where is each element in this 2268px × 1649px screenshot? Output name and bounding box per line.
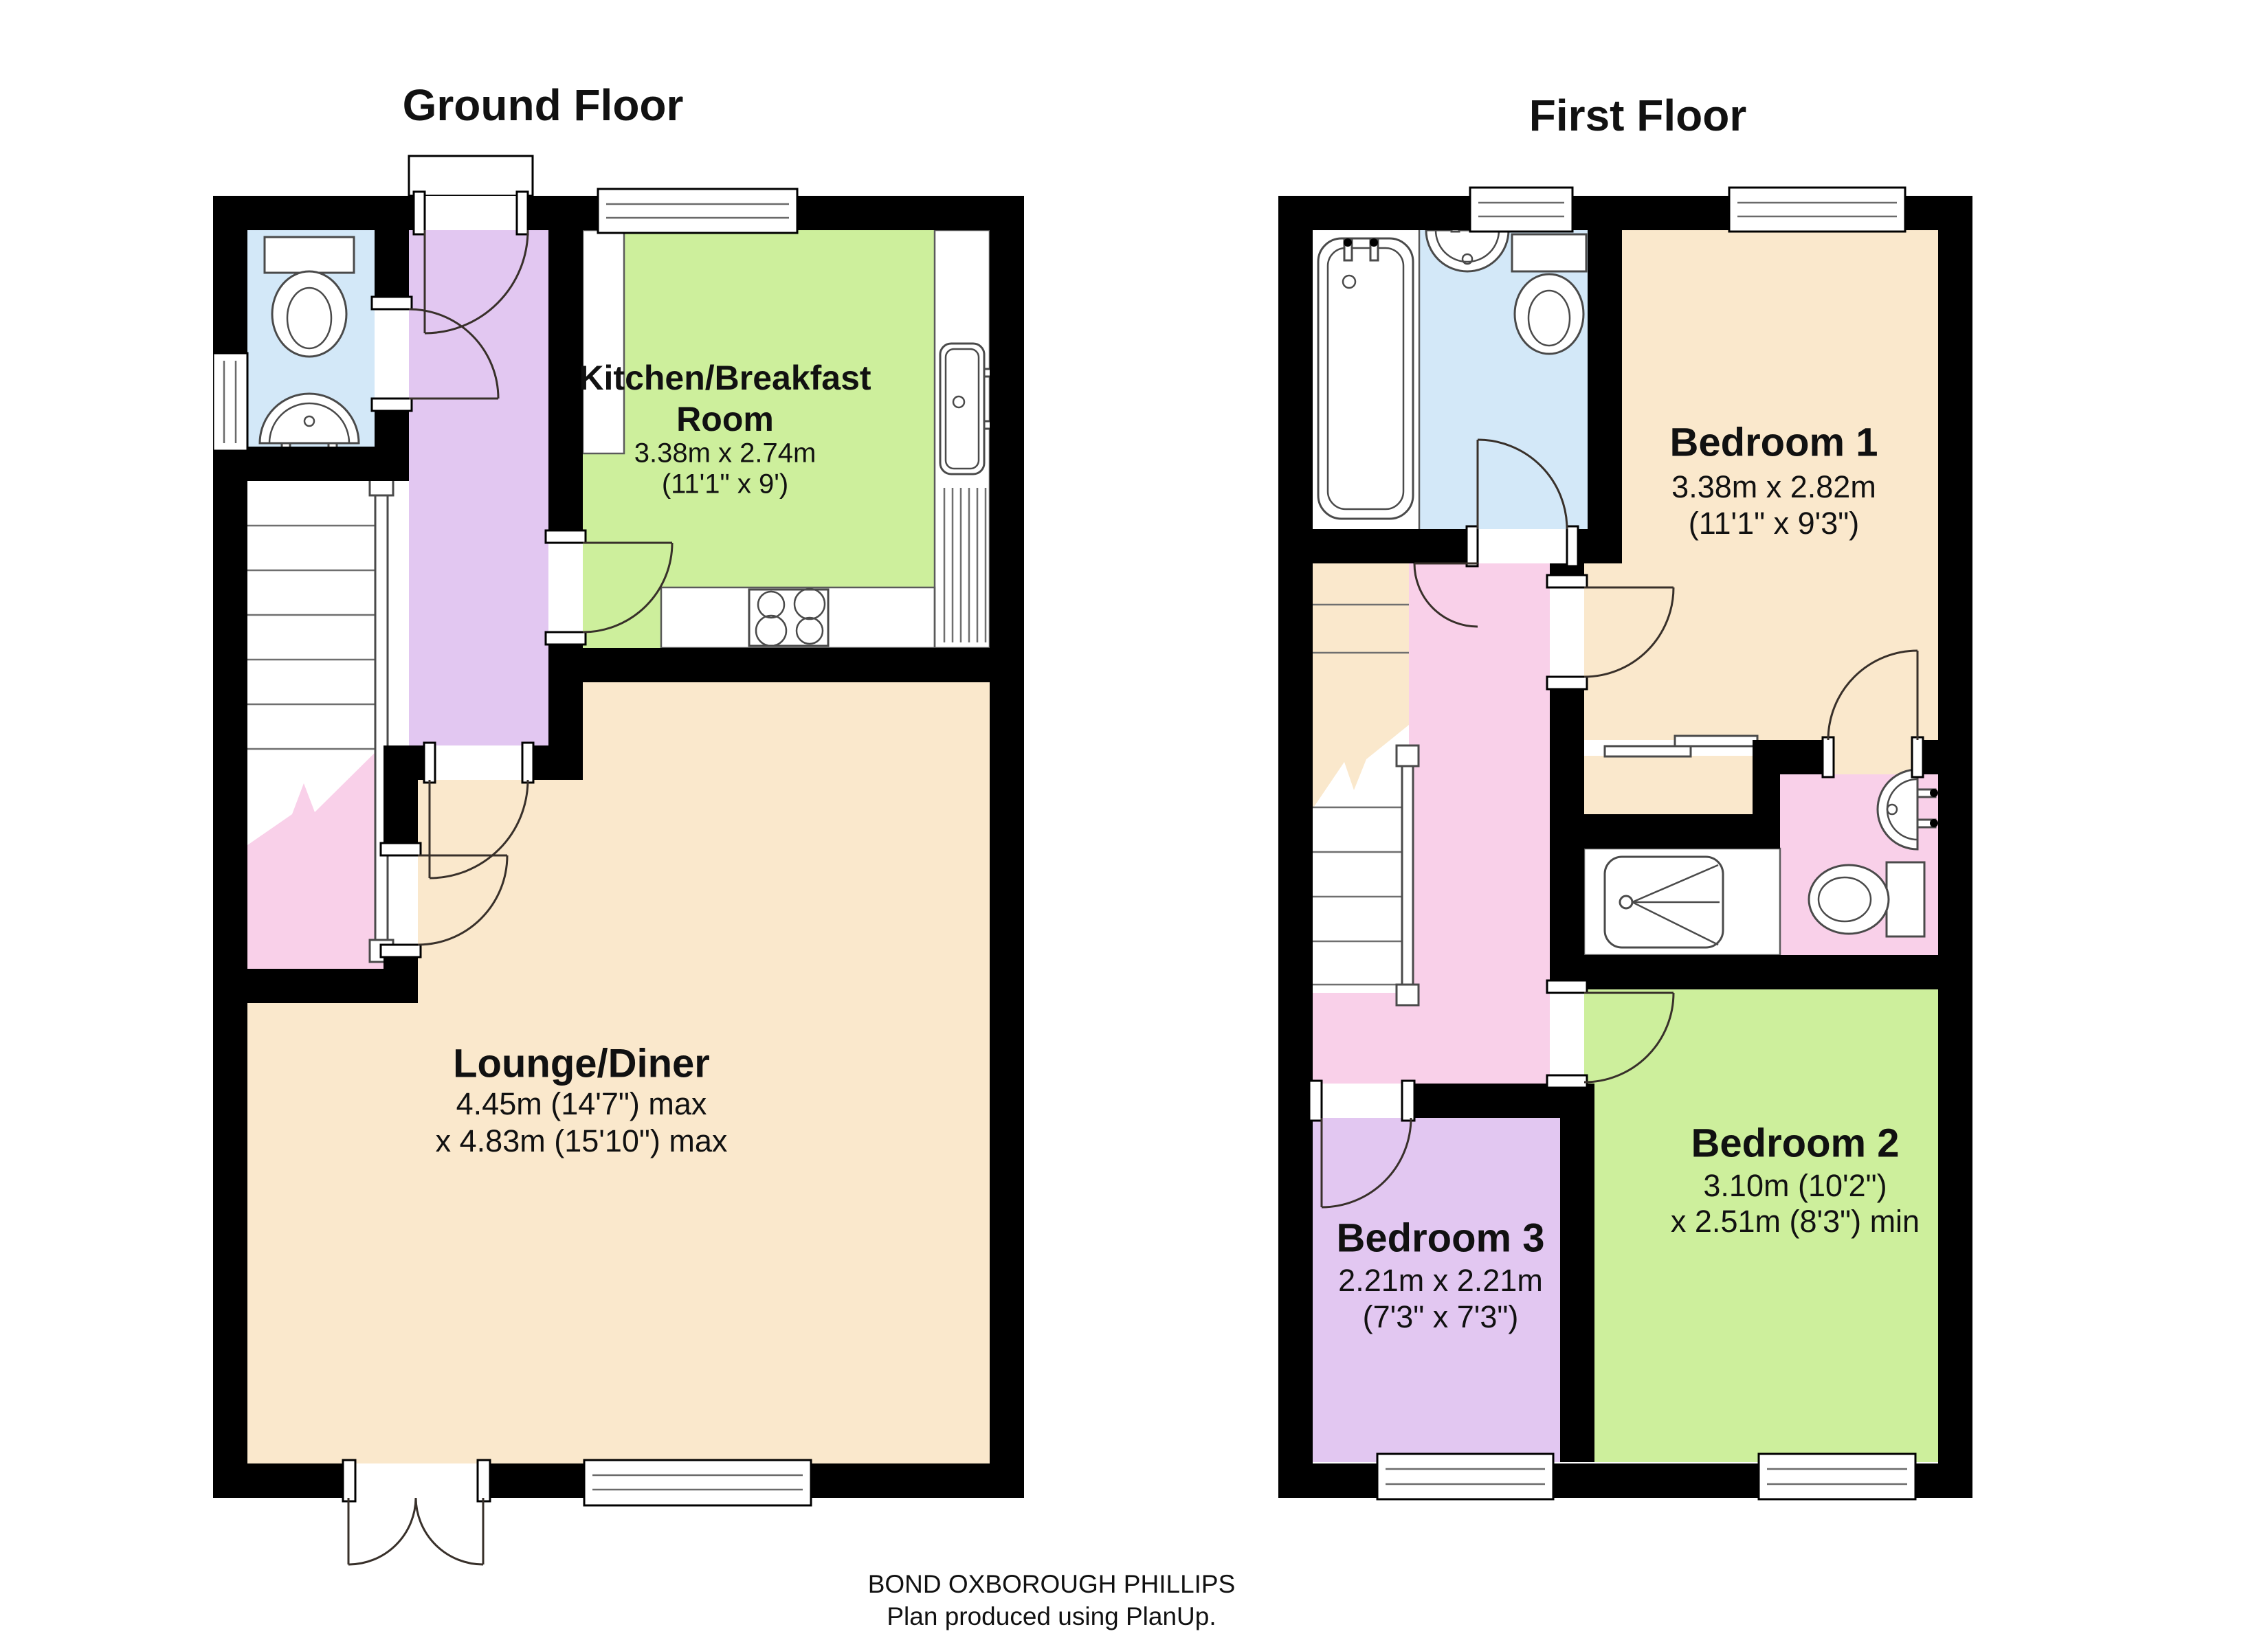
wall-outer-right [1938, 196, 1972, 1498]
bathroom-toilet-icon [1512, 234, 1586, 354]
wall-outer-left [1278, 196, 1313, 1498]
toilet-icon [265, 237, 354, 357]
bedroom3-dims-imperial: (7'3" x 7'3") [1363, 1299, 1519, 1335]
ensuite-toilet-icon [1809, 862, 1924, 936]
window-kitchen-top [598, 189, 797, 233]
french-doors [343, 1460, 490, 1564]
bedroom1-dims-imperial: (11'1" x 9'3") [1689, 506, 1859, 541]
first-floor-plan [1278, 113, 1972, 1580]
shower-tray-icon [1605, 857, 1723, 947]
window-wc-left [213, 353, 247, 451]
window-bedroom3-bottom [1377, 1454, 1553, 1499]
agent-name: BOND OXBOROUGH PHILLIPS [868, 1570, 1236, 1599]
kitchen-dims-metric: 3.38m x 2.74m [634, 438, 816, 469]
wall-outer-right [990, 196, 1024, 1498]
bedroom1-room-strip [1584, 563, 1622, 740]
lounge-label: Lounge/Diner [453, 1041, 710, 1087]
hob-icon [749, 589, 828, 646]
window-bedroom2-bottom [1759, 1454, 1915, 1499]
kitchen-label: Kitchen/Breakfast [579, 358, 871, 398]
newel-post [1397, 985, 1419, 1005]
stair-handrail [375, 484, 388, 962]
bedroom1-label: Bedroom 1 [1670, 420, 1878, 466]
bedroom2-dims-line2: x 2.51m (8'3") min [1671, 1204, 1920, 1239]
lounge-dims-line1: 4.45m (14'7") max [456, 1086, 707, 1122]
bedroom1-wardrobe [1584, 756, 1753, 814]
kitchen-dims-imperial: (11'1" x 9') [662, 469, 788, 500]
bedroom2-label: Bedroom 2 [1691, 1121, 1900, 1167]
ground-floor-plan [213, 113, 1024, 1580]
first-floor-title: First Floor [1529, 90, 1746, 141]
porch-recess [409, 156, 533, 196]
stair-handrail [1402, 756, 1413, 996]
newel-post [1397, 745, 1419, 766]
ground-floor-title: Ground Floor [403, 80, 684, 131]
plan-credit: Plan produced using PlanUp. [887, 1602, 1216, 1631]
floorplan-page: Ground Floor First Floor Kitchen/Breakfa… [0, 0, 2268, 1649]
kitchen-label-line2: Room [676, 399, 774, 439]
bedroom3-dims-metric: 2.21m x 2.21m [1338, 1263, 1543, 1299]
bathroom [1419, 230, 1588, 529]
bedroom1-ensuite-doorway [1828, 740, 1917, 774]
bath-icon [1318, 238, 1413, 519]
window-bedroom1-top [1729, 188, 1905, 232]
bedroom3-label: Bedroom 3 [1337, 1215, 1545, 1261]
bedroom1-dims-metric: 3.38m x 2.82m [1671, 469, 1876, 505]
window-lounge-bottom [584, 1460, 811, 1505]
lounge-dims-line2: x 4.83m (15'10") max [436, 1123, 728, 1159]
window-bathroom-top [1470, 188, 1572, 232]
bedroom2-dims-line1: 3.10m (10'2") [1703, 1168, 1887, 1204]
entrance-hall [409, 230, 548, 745]
